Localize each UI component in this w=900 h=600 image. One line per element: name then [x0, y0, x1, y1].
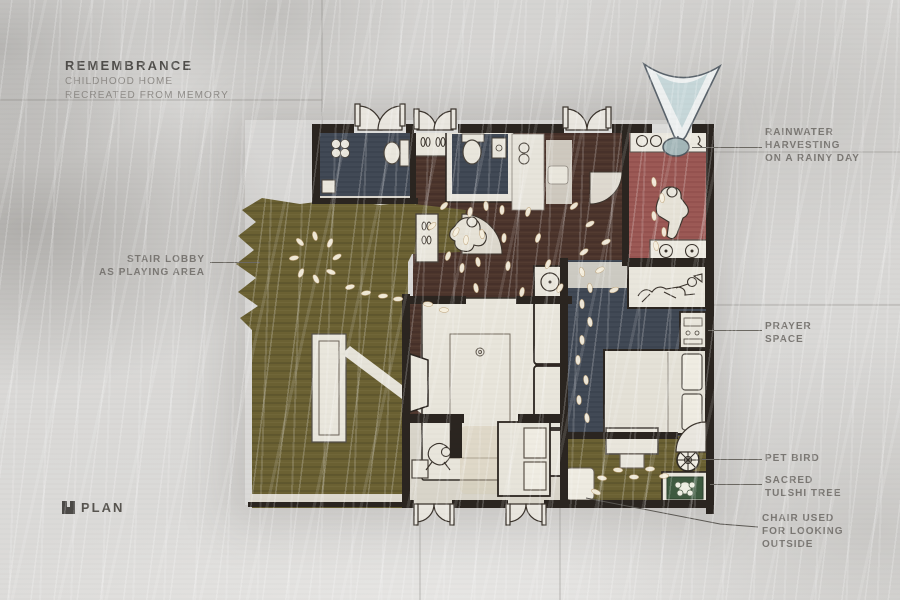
tulshi-planter-icon [662, 472, 708, 504]
sleeping-mat [628, 266, 706, 308]
annotation-lookout-chair: CHAIR USED FOR LOOKING OUTSIDE [762, 512, 882, 551]
bed-right [604, 350, 706, 434]
leader-line-stair-lobby [210, 262, 260, 263]
annotation-pet-bird: PET BIRD [765, 452, 875, 465]
toy-box [412, 460, 428, 478]
prayer-cabinet [680, 312, 706, 348]
poster: REMEMBRANCE CHILDHOOD HOME RECREATED FRO… [0, 0, 900, 600]
leader-line-rainwater [692, 147, 762, 148]
plan-icon [62, 501, 75, 514]
plan-label: PLAN [62, 500, 124, 515]
leader-line-pet-bird [702, 459, 762, 460]
bathroom-2 [446, 128, 514, 202]
lookout-chair [566, 468, 594, 500]
annotation-prayer-space: PRAYER SPACE [765, 320, 875, 346]
dressing-nook [512, 134, 572, 210]
annotation-tulshi-tree: SACRED TULSHI TREE [765, 474, 875, 500]
tv [410, 354, 428, 412]
page-title: REMEMBRANCE [65, 58, 229, 73]
subtitle-line-1: CHILDHOOD HOME [65, 76, 229, 87]
leader-line-tulshi [710, 484, 762, 485]
bed-bottom [498, 422, 550, 496]
veranda-table [606, 428, 658, 454]
title-block: REMEMBRANCE CHILDHOOD HOME RECREATED FRO… [65, 58, 229, 101]
annotation-rainwater: RAINWATER HARVESTING ON A RAINY DAY [765, 126, 895, 165]
annotation-stair-lobby: STAIR LOBBY AS PLAYING AREA [55, 253, 205, 279]
subtitle-line-2: RECREATED FROM MEMORY [65, 90, 229, 101]
leader-line-prayer [708, 330, 762, 331]
